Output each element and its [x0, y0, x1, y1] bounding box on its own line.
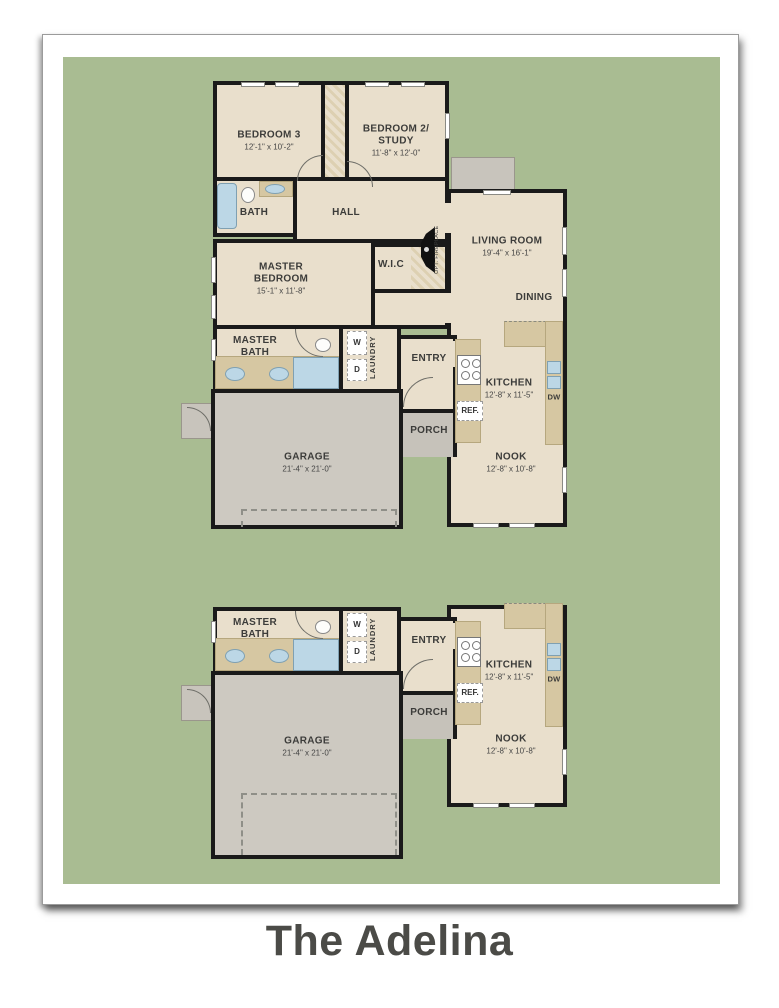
window	[562, 269, 567, 297]
dishwasher-label-a: DW	[547, 393, 560, 402]
room-label-wic: W.I.C	[378, 259, 404, 271]
kitchen-sink-icon-b	[547, 643, 561, 656]
ref-label-b: REF.	[461, 689, 478, 697]
window	[473, 523, 499, 528]
window	[241, 82, 265, 87]
room-label-porch: PORCH	[410, 707, 448, 719]
kitchen-sink-icon-a	[547, 361, 561, 374]
window	[211, 339, 216, 361]
floor-plan-page: REF. DW W D LAUNDRY OPT. FIREPLACE	[0, 0, 779, 1008]
refrigerator-box-a: REF.	[457, 401, 483, 421]
dryer-box-a: D	[347, 359, 367, 381]
vanity-sink-icon-b	[225, 649, 245, 663]
room-label-master-bedroom: MASTERBEDROOM15'-1" x 11'-8"	[254, 261, 308, 296]
shower-icon-a	[293, 357, 339, 389]
room-label-garage: GARAGE21'-4" x 21'-0"	[282, 735, 331, 758]
corridor-living-opening-a	[441, 293, 455, 323]
room-label-nook: NOOK12'-8" x 10'-8"	[486, 451, 535, 474]
room-label-kitchen: KITCHEN12'-8" x 11'-5"	[485, 377, 534, 400]
room-label-kitchen: KITCHEN12'-8" x 11'-5"	[485, 659, 534, 682]
garage-door-dashed-outline-a	[241, 509, 397, 527]
stove-icon-a	[457, 355, 481, 385]
room-label-master-bath: MASTERBATH	[233, 617, 277, 641]
window	[562, 467, 567, 493]
vanity-sink-icon-b	[269, 649, 289, 663]
window	[473, 803, 499, 808]
room-label-bedroom2: BEDROOM 2/STUDY11'-8" x 12'-0"	[363, 123, 429, 158]
laundry-label-b: LAUNDRY	[369, 609, 383, 669]
washer-box-b: W	[347, 613, 367, 637]
vanity-sink-icon-a	[269, 367, 289, 381]
room-label-garage: GARAGE21'-4" x 21'-0"	[282, 451, 331, 474]
room-label-master-bath: MASTERBATH	[233, 335, 277, 359]
laundry-label-a: LAUNDRY	[369, 327, 383, 387]
plan-title: The Adelina	[0, 916, 779, 968]
window	[509, 803, 535, 808]
patio-slab	[451, 157, 515, 191]
window	[562, 227, 567, 255]
washer-box-a: W	[347, 331, 367, 355]
window	[211, 257, 216, 283]
floor-plan-canvas: REF. DW W D LAUNDRY OPT. FIREPLACE	[63, 57, 720, 884]
window	[445, 113, 450, 139]
kitchen-sink-icon-a	[547, 376, 561, 389]
bath-sink-icon-a	[265, 184, 285, 194]
ref-label-a: REF.	[461, 407, 478, 415]
room-label-porch: PORCH	[410, 425, 448, 437]
room-label-nook: NOOK12'-8" x 10'-8"	[486, 733, 535, 756]
room-label-entry: ENTRY	[411, 635, 446, 647]
floor-plan-sheet: REF. DW W D LAUNDRY OPT. FIREPLACE	[42, 34, 739, 905]
window	[483, 190, 511, 195]
kitchen-sink-icon-b	[547, 658, 561, 671]
toilet-icon-a	[241, 187, 255, 203]
window	[211, 621, 216, 643]
room-label-bedroom3: BEDROOM 312'-1" x 10'-2"	[237, 129, 300, 152]
room-label-hall: HALL	[332, 207, 360, 219]
fireplace-dot-a	[424, 247, 429, 252]
room-label-bath: BATH	[240, 207, 268, 219]
fireplace-label-a: OPT. FIREPLACE	[434, 223, 445, 277]
window	[365, 82, 389, 87]
window	[562, 749, 567, 775]
window	[211, 295, 216, 319]
refrigerator-box-b: REF.	[457, 683, 483, 703]
vanity-sink-icon-a	[225, 367, 245, 381]
dryer-box-b: D	[347, 641, 367, 663]
hall-corridor-a	[371, 289, 449, 329]
window	[275, 82, 299, 87]
stove-icon-b	[457, 637, 481, 667]
shower-icon-b	[293, 639, 339, 671]
room-label-dining: DINING	[516, 292, 553, 304]
dishwasher-label-b: DW	[547, 675, 560, 684]
room-label-entry: ENTRY	[411, 353, 446, 365]
room-label-living: LIVING ROOM19'-4" x 16'-1"	[472, 235, 543, 258]
window	[509, 523, 535, 528]
tub-icon-a	[217, 183, 237, 229]
window	[401, 82, 425, 87]
garage-door-dashed-outline-b	[241, 793, 397, 855]
